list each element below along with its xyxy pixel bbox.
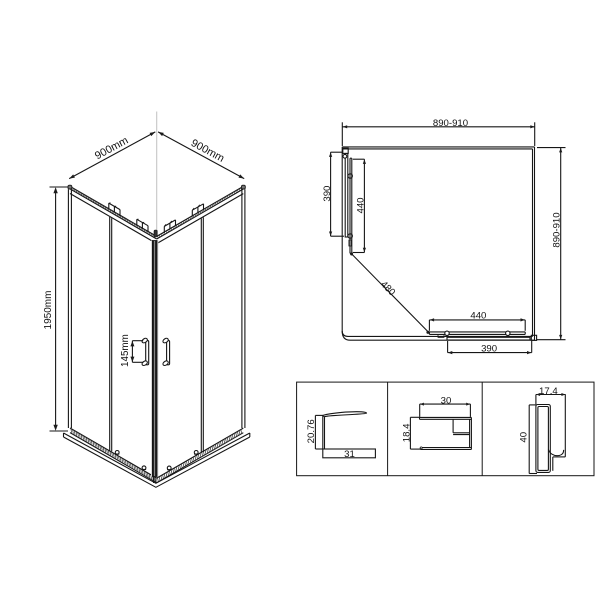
svg-text:20.76: 20.76 (306, 419, 317, 443)
svg-text:145mm: 145mm (120, 334, 131, 367)
svg-text:390: 390 (322, 186, 333, 202)
svg-text:40: 40 (518, 432, 529, 443)
svg-text:440: 440 (355, 197, 366, 213)
svg-text:17.4: 17.4 (539, 386, 558, 397)
svg-text:1950mm: 1950mm (43, 291, 54, 330)
svg-text:390: 390 (481, 344, 497, 355)
svg-text:440: 440 (470, 310, 486, 321)
svg-text:890-910: 890-910 (551, 212, 562, 247)
svg-text:31: 31 (344, 449, 355, 460)
svg-text:18.4: 18.4 (401, 423, 412, 442)
svg-text:890-910: 890-910 (433, 118, 468, 129)
svg-text:30: 30 (441, 396, 452, 407)
